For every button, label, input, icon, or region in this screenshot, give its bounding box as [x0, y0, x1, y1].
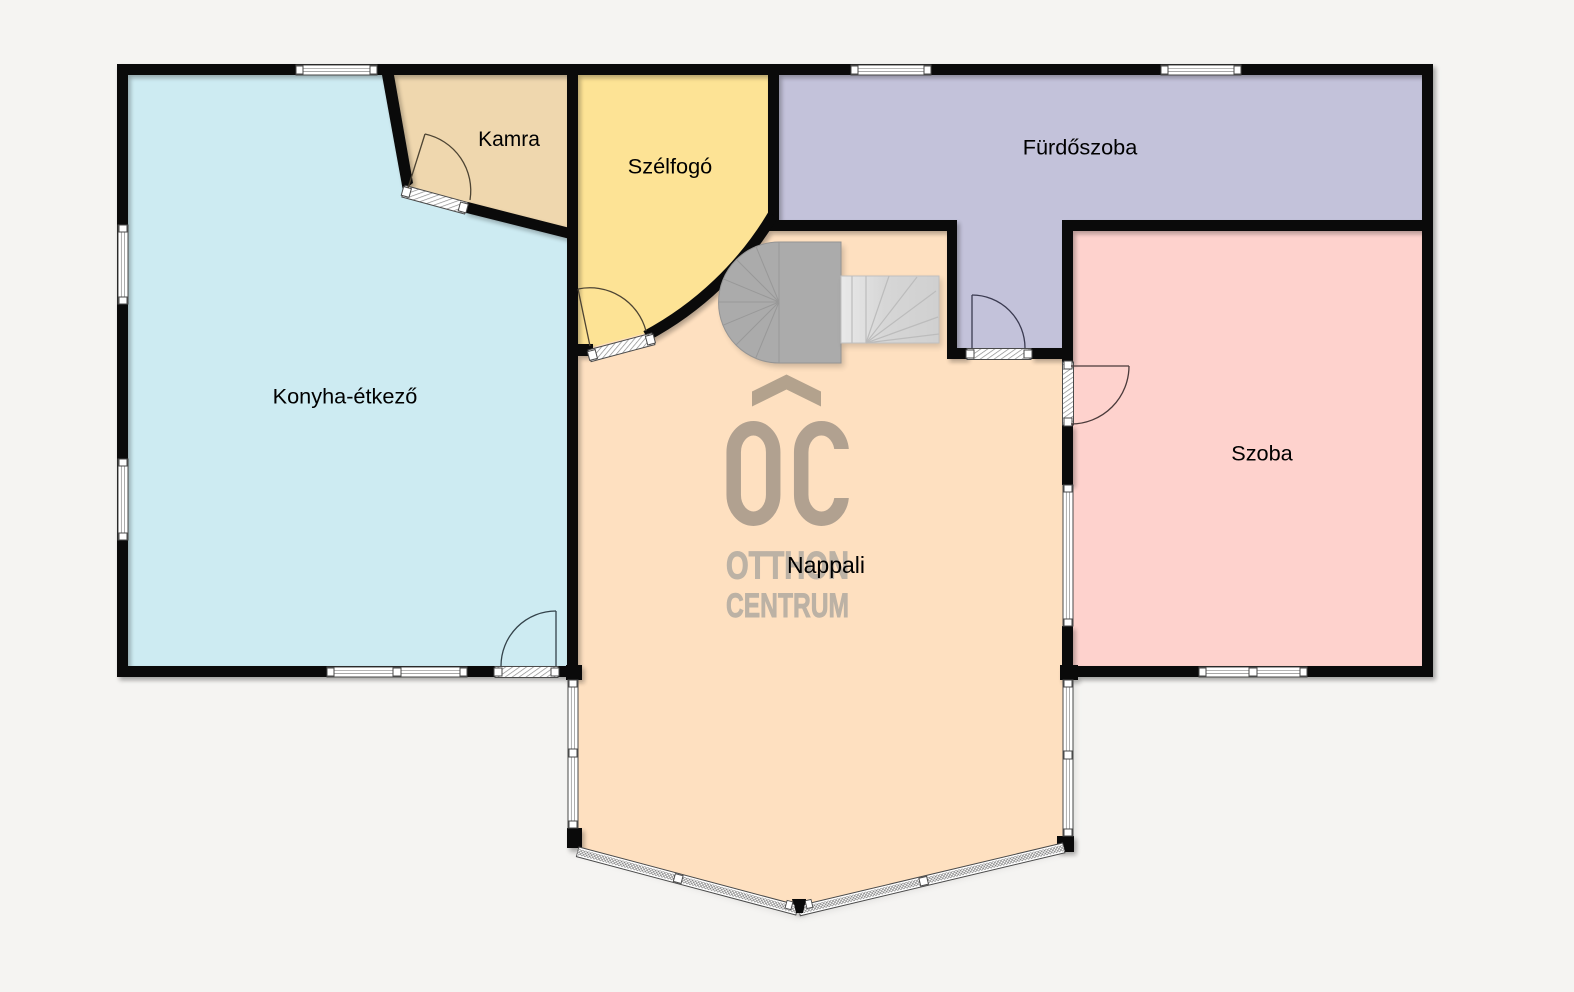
svg-text:Konyha-étkező: Konyha-étkező	[273, 384, 418, 409]
svg-text:Fürdőszoba: Fürdőszoba	[1023, 135, 1138, 160]
svg-text:Szoba: Szoba	[1231, 441, 1293, 466]
svg-text:Szélfogó: Szélfogó	[628, 154, 712, 179]
svg-text:Kamra: Kamra	[478, 128, 540, 151]
svg-text:Nappali: Nappali	[787, 552, 865, 578]
svg-text:CENTRUM: CENTRUM	[726, 587, 849, 625]
